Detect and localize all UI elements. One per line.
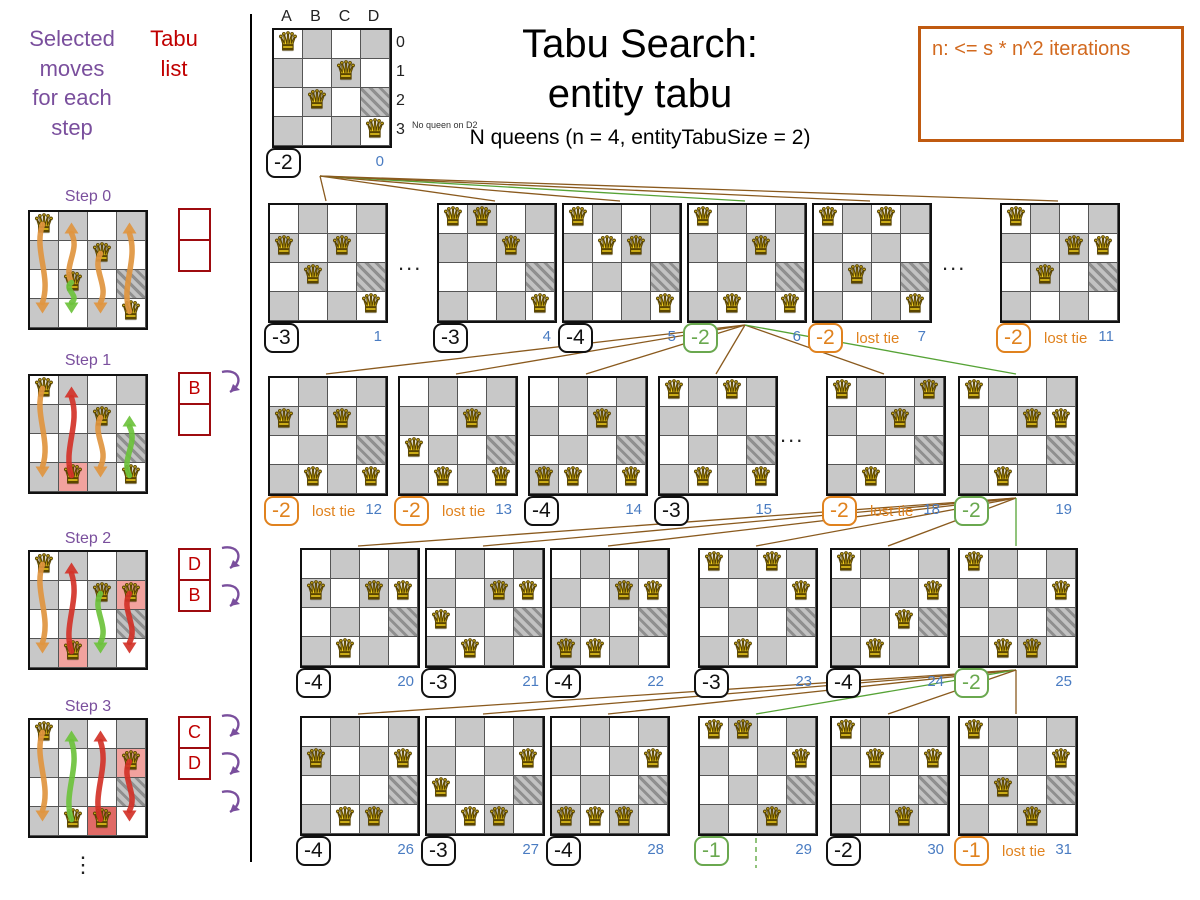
queen-icon: ♛ (581, 803, 609, 831)
board-cell (564, 234, 593, 263)
board-cell: ♛ (828, 378, 857, 407)
board-cell (468, 292, 497, 321)
queen-icon: ♛ (30, 210, 58, 238)
no-queen-cell (1047, 776, 1076, 805)
board-cell (622, 205, 651, 234)
board-cell (960, 747, 989, 776)
board-index: 24 (826, 673, 944, 690)
board-cell: ♛ (552, 637, 581, 666)
no-queen-cell (617, 436, 646, 465)
queen-icon: ♛ (331, 635, 359, 663)
queen-icon: ♛ (814, 203, 842, 231)
queen-icon: ♛ (872, 203, 900, 231)
board-cell: ♛ (919, 747, 948, 776)
board-cell: ♛ (59, 463, 88, 492)
board-index: 28 (546, 841, 664, 858)
board-cell (989, 805, 1018, 834)
board-cell (651, 205, 680, 234)
board-cell (526, 234, 555, 263)
board-cell (389, 805, 418, 834)
board-cell (718, 436, 747, 465)
board-cell (828, 436, 857, 465)
board-cell (530, 436, 559, 465)
queen-icon: ♛ (610, 803, 638, 831)
board-cell: ♛ (564, 205, 593, 234)
board-cell (497, 292, 526, 321)
board-cell (59, 434, 88, 463)
board-cell (872, 263, 901, 292)
board-cell (660, 407, 689, 436)
board-cell: ♛ (1047, 579, 1076, 608)
board-index: 26 (296, 841, 414, 858)
queen-icon: ♛ (302, 745, 330, 773)
board-cell: ♛ (332, 59, 361, 88)
queen-icon: ♛ (59, 805, 87, 833)
board-cell (514, 550, 543, 579)
board-cell: ♛ (1002, 205, 1031, 234)
board-cell: ♛ (787, 579, 816, 608)
tree-board: ♛♛♛♛ (687, 203, 807, 323)
tree-board: ♛♛♛♛ (1000, 203, 1120, 323)
queen-icon: ♛ (552, 803, 580, 831)
board-cell: ♛ (610, 579, 639, 608)
board-cell (639, 805, 668, 834)
board-index: 14 (524, 501, 642, 518)
board-cell (729, 805, 758, 834)
queen-icon: ♛ (747, 232, 775, 260)
board-cell (559, 407, 588, 436)
board-cell (651, 234, 680, 263)
tree-board: ♛♛♛♛ (268, 376, 388, 496)
board-cell (639, 637, 668, 666)
board-cell: ♛ (458, 407, 487, 436)
board-cell (59, 610, 88, 639)
board-cell: ♛ (1060, 234, 1089, 263)
board-cell (890, 579, 919, 608)
board-cell (514, 637, 543, 666)
board-cell (360, 718, 389, 747)
board-cell (117, 552, 146, 581)
board-cell (1018, 550, 1047, 579)
board-cell: ♛ (88, 807, 117, 836)
board-cell: ♛ (331, 805, 360, 834)
queen-icon: ♛ (439, 203, 467, 231)
board-cell (30, 405, 59, 434)
queen-icon: ♛ (700, 716, 728, 744)
board-cell (88, 749, 117, 778)
tree-board: ♛♛♛♛ (425, 716, 545, 836)
board-cell: ♛ (299, 465, 328, 494)
board-cell (832, 637, 861, 666)
board-cell (439, 234, 468, 263)
board-cell: ♛ (117, 749, 146, 778)
tree-board: ♛♛♛♛ (425, 548, 545, 668)
no-queen-cell (776, 263, 805, 292)
queen-icon: ♛ (526, 290, 554, 318)
board-cell: ♛ (299, 263, 328, 292)
board-cell (303, 59, 332, 88)
no-queen-cell (514, 608, 543, 637)
board-cell: ♛ (787, 747, 816, 776)
board-cell: ♛ (427, 608, 456, 637)
board-cell: ♛ (270, 234, 299, 263)
board-cell (429, 436, 458, 465)
board-cell (1060, 292, 1089, 321)
board-cell: ♛ (1018, 407, 1047, 436)
queen-icon: ♛ (729, 635, 757, 663)
board-cell (88, 778, 117, 807)
board-cell: ♛ (59, 270, 88, 299)
queen-icon: ♛ (88, 805, 116, 833)
queen-icon: ♛ (828, 376, 856, 404)
board-cell: ♛ (274, 30, 303, 59)
board-cell: ♛ (622, 234, 651, 263)
board-cell (832, 747, 861, 776)
board-cell (588, 465, 617, 494)
board-cell (299, 378, 328, 407)
no-queen-cell (1047, 608, 1076, 637)
board-cell (886, 465, 915, 494)
board-cell (857, 407, 886, 436)
board-cell (302, 550, 331, 579)
board-cell: ♛ (651, 292, 680, 321)
queen-icon: ♛ (718, 290, 746, 318)
board-cell: ♛ (30, 376, 59, 405)
queen-icon: ♛ (59, 461, 87, 489)
board-cell: ♛ (1018, 637, 1047, 666)
board-cell (274, 88, 303, 117)
board-cell: ♛ (117, 299, 146, 328)
board-cell: ♛ (960, 718, 989, 747)
board-cell (1018, 378, 1047, 407)
board-cell (593, 263, 622, 292)
board-cell (299, 234, 328, 263)
tree-board: ♛♛♛♛ (826, 376, 946, 496)
board-index: 21 (421, 673, 539, 690)
board-cell (861, 550, 890, 579)
board-cell: ♛ (1047, 407, 1076, 436)
board-cell (456, 608, 485, 637)
board-cell (689, 234, 718, 263)
board-cell: ♛ (328, 234, 357, 263)
tree-board: ♛♛♛♛ (300, 548, 420, 668)
queen-icon: ♛ (1060, 232, 1088, 260)
board-cell (1047, 550, 1076, 579)
board-cell (360, 608, 389, 637)
board-cell (303, 30, 332, 59)
board-cell (1018, 436, 1047, 465)
board-cell (357, 378, 386, 407)
board-cell (564, 263, 593, 292)
board-cell (758, 637, 787, 666)
board-cell (331, 747, 360, 776)
board-cell (328, 436, 357, 465)
board-cell (456, 776, 485, 805)
board-cell (117, 241, 146, 270)
board-cell (989, 378, 1018, 407)
queen-icon: ♛ (302, 577, 330, 605)
ellipsis: ... (780, 422, 804, 448)
board-index: 0 (266, 153, 384, 170)
board-cell (552, 747, 581, 776)
tree-board: ♛♛♛♛ (528, 376, 648, 496)
step-board: ♛♛♛♛ (28, 210, 148, 330)
board-cell: ♛ (861, 637, 890, 666)
board-index: 15 (654, 501, 772, 518)
board-cell (787, 550, 816, 579)
board-cell (639, 550, 668, 579)
board-cell (700, 805, 729, 834)
board-cell (514, 805, 543, 834)
board-cell (427, 550, 456, 579)
board-cell: ♛ (700, 550, 729, 579)
row-label: 0 (396, 34, 405, 52)
no-queen-cell (526, 263, 555, 292)
board-cell: ♛ (302, 747, 331, 776)
board-cell (1031, 292, 1060, 321)
no-queen-cell (357, 436, 386, 465)
queen-icon: ♛ (456, 635, 484, 663)
board-cell (729, 579, 758, 608)
queen-icon: ♛ (843, 261, 871, 289)
board-cell (814, 292, 843, 321)
queen-icon: ♛ (328, 405, 356, 433)
board-cell: ♛ (360, 579, 389, 608)
board-cell (989, 436, 1018, 465)
tree-board: ♛♛♛♛ (830, 548, 950, 668)
queen-icon: ♛ (30, 374, 58, 402)
tabu-list-slot (178, 208, 211, 241)
board-cell (814, 263, 843, 292)
board-index: 1 (264, 328, 382, 345)
board-cell (117, 376, 146, 405)
board-cell: ♛ (88, 581, 117, 610)
board-cell: ♛ (919, 579, 948, 608)
board-cell (960, 407, 989, 436)
board-cell (485, 608, 514, 637)
board-cell (400, 407, 429, 436)
board-cell (30, 270, 59, 299)
board-cell (588, 436, 617, 465)
tree-board: ♛♛♛♛ (958, 548, 1078, 668)
queen-icon: ♛ (857, 463, 885, 491)
queen-icon: ♛ (861, 745, 889, 773)
board-cell (59, 376, 88, 405)
board-cell (1018, 608, 1047, 637)
board-cell (776, 205, 805, 234)
step-board: ♛♛♛♛ (28, 374, 148, 494)
tree-board: ♛♛♛♛ (550, 548, 670, 668)
queen-icon: ♛ (832, 716, 860, 744)
no-queen-cell (117, 270, 146, 299)
board-cell (427, 805, 456, 834)
board-cell: ♛ (30, 720, 59, 749)
board-cell (30, 639, 59, 668)
board-cell (581, 747, 610, 776)
board-cell (758, 579, 787, 608)
board-cell (989, 550, 1018, 579)
board-cell (901, 205, 930, 234)
board-cell (302, 805, 331, 834)
queen-icon: ♛ (581, 635, 609, 663)
queen-icon: ♛ (787, 745, 815, 773)
queen-icon: ♛ (564, 203, 592, 231)
tree-board: ♛♛♛♛ (830, 716, 950, 836)
board-cell: ♛ (758, 550, 787, 579)
queen-icon: ♛ (915, 376, 943, 404)
no-queen-cell (117, 610, 146, 639)
queen-icon: ♛ (88, 403, 116, 431)
queen-icon: ♛ (861, 635, 889, 663)
queen-icon: ♛ (458, 405, 486, 433)
no-queen-cell (901, 263, 930, 292)
queen-icon: ♛ (456, 803, 484, 831)
board-cell: ♛ (59, 639, 88, 668)
board-cell (1018, 747, 1047, 776)
board-cell: ♛ (497, 234, 526, 263)
queen-icon: ♛ (1018, 405, 1046, 433)
board-cell (989, 579, 1018, 608)
board-cell: ♛ (617, 465, 646, 494)
board-cell: ♛ (700, 718, 729, 747)
board-cell (919, 805, 948, 834)
queen-icon: ♛ (832, 548, 860, 576)
board-cell: ♛ (989, 776, 1018, 805)
board-cell (88, 639, 117, 668)
board-cell (919, 550, 948, 579)
board-cell: ♛ (832, 718, 861, 747)
board-cell: ♛ (718, 292, 747, 321)
tree-board: ♛♛♛♛ (698, 548, 818, 668)
row-label: 3 (396, 121, 405, 139)
tabu-list-slot (178, 403, 211, 436)
board-cell (361, 30, 390, 59)
board-index: 20 (296, 673, 414, 690)
board-cell (622, 263, 651, 292)
queen-icon: ♛ (901, 290, 929, 318)
board-cell (832, 776, 861, 805)
board-cell (890, 776, 919, 805)
board-cell (861, 579, 890, 608)
queen-icon: ♛ (758, 803, 786, 831)
column-label: B (301, 8, 330, 26)
board-cell (30, 778, 59, 807)
board-cell (30, 807, 59, 836)
board-index: 18 (822, 501, 940, 518)
board-cell (427, 637, 456, 666)
board-cell (886, 436, 915, 465)
board-cell: ♛ (468, 205, 497, 234)
board-cell (861, 776, 890, 805)
board-cell (729, 608, 758, 637)
board-cell (729, 550, 758, 579)
tree-board: ♛♛♛♛ (268, 203, 388, 323)
board-cell: ♛ (843, 263, 872, 292)
board-cell: ♛ (689, 205, 718, 234)
queen-icon: ♛ (117, 297, 145, 325)
root-board: ♛♛♛♛ (272, 28, 392, 148)
tree-edge (320, 176, 870, 201)
queen-icon: ♛ (30, 718, 58, 746)
board-cell (530, 378, 559, 407)
board-cell (718, 234, 747, 263)
board-cell (890, 637, 919, 666)
tree-board: ♛♛♛♛ (958, 376, 1078, 496)
queen-icon: ♛ (357, 463, 385, 491)
board-cell (787, 637, 816, 666)
board-cell (117, 807, 146, 836)
board-cell: ♛ (302, 579, 331, 608)
queen-icon: ♛ (59, 268, 87, 296)
board-cell (747, 292, 776, 321)
queen-icon: ♛ (989, 463, 1017, 491)
queen-icon: ♛ (960, 548, 988, 576)
board-cell (400, 378, 429, 407)
board-cell (872, 234, 901, 263)
board-index: 7 (808, 328, 926, 345)
board-cell (497, 263, 526, 292)
board-cell (439, 292, 468, 321)
board-cell (718, 263, 747, 292)
no-queen-cell (389, 608, 418, 637)
board-cell: ♛ (1089, 234, 1118, 263)
board-cell (700, 608, 729, 637)
board-cell (117, 212, 146, 241)
board-cell: ♛ (861, 747, 890, 776)
board-cell: ♛ (514, 747, 543, 776)
board-index: 23 (694, 673, 812, 690)
board-cell (485, 718, 514, 747)
queen-icon: ♛ (747, 463, 775, 491)
board-cell (610, 747, 639, 776)
queen-icon: ♛ (514, 577, 542, 605)
board-cell (1047, 718, 1076, 747)
board-cell: ♛ (30, 552, 59, 581)
queen-icon: ♛ (787, 577, 815, 605)
no-queen-cell (389, 776, 418, 805)
tree-board: ♛♛♛♛ (698, 716, 818, 836)
board-index: 31 (954, 841, 1072, 858)
board-cell (328, 465, 357, 494)
board-cell (302, 637, 331, 666)
board-cell (729, 747, 758, 776)
board-cell (117, 405, 146, 434)
board-cell (901, 234, 930, 263)
board-cell (360, 637, 389, 666)
board-cell: ♛ (487, 465, 516, 494)
board-cell (59, 212, 88, 241)
board-cell (59, 299, 88, 328)
queen-icon: ♛ (117, 461, 145, 489)
board-cell: ♛ (872, 205, 901, 234)
queen-icon: ♛ (331, 803, 359, 831)
tabu-list-slot (178, 239, 211, 272)
board-cell (689, 292, 718, 321)
queen-icon: ♛ (622, 232, 650, 260)
board-cell (400, 465, 429, 494)
queen-icon: ♛ (660, 376, 688, 404)
queen-icon: ♛ (468, 203, 496, 231)
board-cell (1060, 263, 1089, 292)
board-cell (832, 608, 861, 637)
queen-icon: ♛ (919, 745, 947, 773)
board-cell (88, 552, 117, 581)
board-cell (456, 579, 485, 608)
board-cell (59, 552, 88, 581)
no-queen-cell (487, 436, 516, 465)
board-cell (861, 608, 890, 637)
board-cell: ♛ (1031, 263, 1060, 292)
